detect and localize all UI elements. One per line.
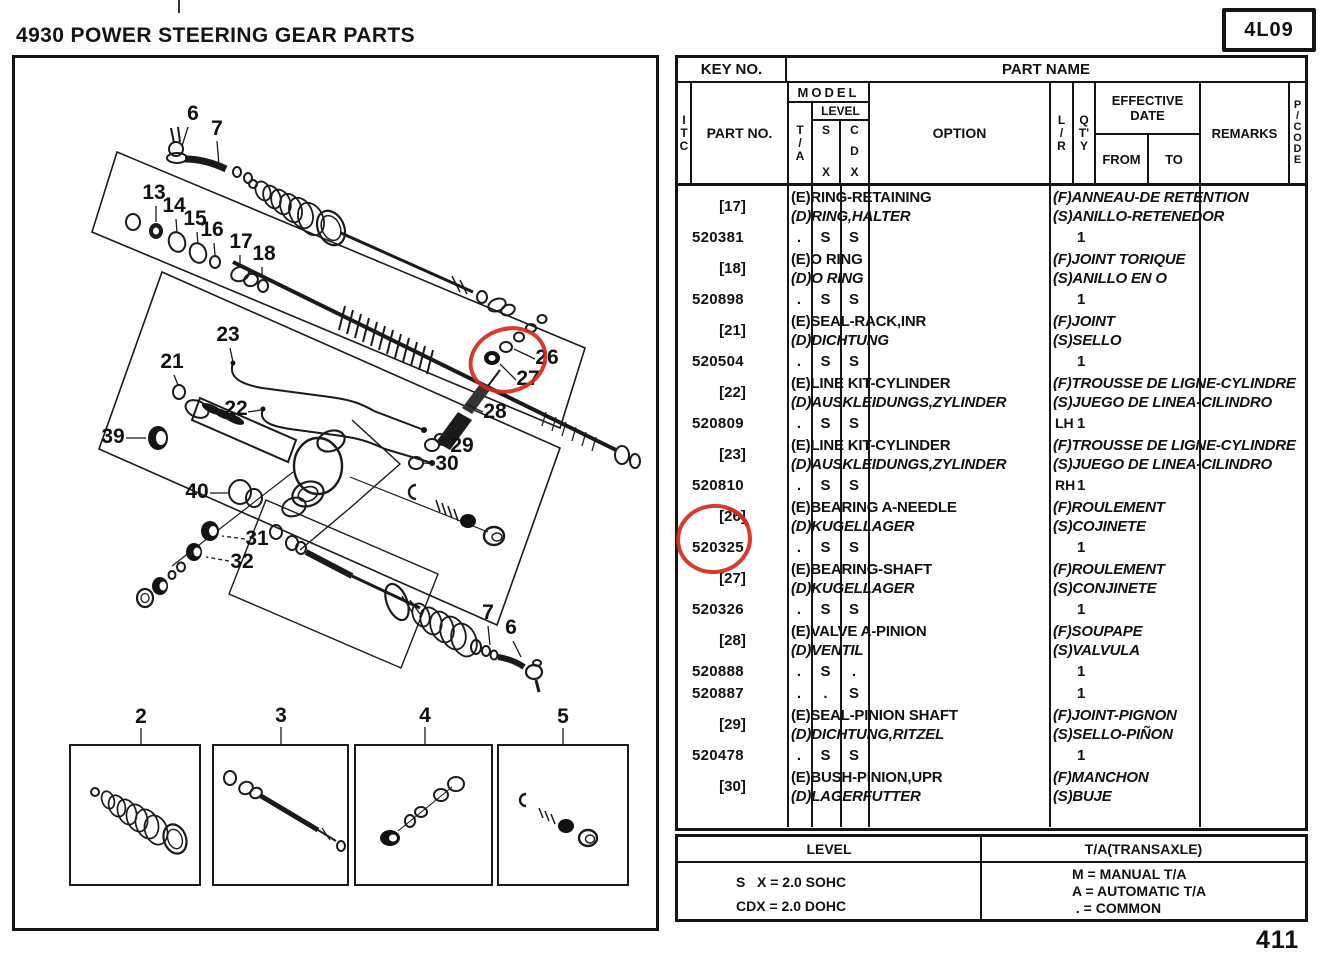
callout-number: 30 — [435, 452, 458, 475]
part-number: 520887 — [678, 685, 787, 702]
name-english: (E)RING-RETAINING — [791, 188, 1049, 207]
name-french: (F)ROULEMENT — [1053, 560, 1305, 579]
header-option: OPTION — [870, 83, 1051, 183]
page-number: 411 — [1256, 926, 1299, 955]
name-spanish: (S)ANILLO-RETENEDOR — [1053, 207, 1305, 226]
catalog-page: { "page": { "title": "4930 POWER STEERIN… — [0, 0, 1324, 963]
name-en-de: (E)BEARING-SHAFT(D)KUGELLAGER — [787, 559, 1049, 598]
sheet-code-box: 4L09 — [1222, 8, 1316, 52]
header-key-no: KEY NO. — [678, 58, 787, 81]
name-spanish: (S)ANILLO EN O — [1053, 269, 1305, 288]
cdx-value: S — [840, 477, 868, 494]
legend-ta-item: . = COMMON — [1072, 900, 1305, 917]
table-body: [17](E)RING-RETAINING(D)RING,HALTER(F)AN… — [678, 186, 1305, 827]
header-effective-date: EFFECTIVE DATE — [1096, 83, 1199, 133]
name-en-de: (E)SEAL-RACK,INR(D)DICHTUNG — [787, 311, 1049, 350]
part-row: 520809.SSLH1 — [678, 412, 1305, 434]
name-spanish: (S)BUJE — [1053, 787, 1305, 806]
qty-value: 1 — [1077, 229, 1099, 246]
name-german: (D)AUSKLEIDUNGS,ZYLINDER — [791, 455, 1049, 474]
name-fr-es: (F)ROULEMENT(S)CONJINETE — [1049, 559, 1305, 598]
ta-value: . — [787, 415, 811, 432]
header-sx: SX — [813, 121, 841, 183]
callout-number: 17 — [229, 230, 252, 253]
header-model: MODEL — [789, 83, 868, 103]
header-ta: T/A — [789, 103, 813, 183]
part-name-row: [28](E)VALVE A-PINION(D)VENTIL(F)SOUPAPE… — [678, 620, 1305, 660]
qty-value: 1 — [1077, 747, 1099, 764]
qty-value: 1 — [1077, 477, 1099, 494]
page-title: 4930 POWER STEERING GEAR PARTS — [16, 24, 415, 48]
header-to: TO — [1149, 135, 1199, 183]
name-french: (F)MANCHON — [1053, 768, 1305, 787]
header-lr: L/R — [1051, 83, 1074, 183]
name-fr-es: (F)JOINT TORIQUE(S)ANILLO EN O — [1049, 249, 1305, 288]
legend-table: LEVEL T/A(TRANSAXLE) S X = 2.0 SOHCCDX =… — [675, 834, 1308, 922]
callout-leader-line — [176, 219, 177, 233]
key-number: [27] — [678, 559, 787, 598]
part-row: 520478.SS1 — [678, 744, 1305, 766]
callout-leader-line — [222, 536, 245, 539]
name-french: (F)SOUPAPE — [1053, 622, 1305, 641]
sx-value: S — [811, 601, 840, 618]
part-name-row: [29](E)SEAL-PINION SHAFT(D)DICHTUNG,RITZ… — [678, 704, 1305, 744]
part-number: 520381 — [678, 229, 787, 246]
name-spanish: (S)JUEGO DE LINEA-CILINDRO — [1053, 455, 1305, 474]
legend-level-title: LEVEL — [678, 837, 982, 861]
qty-value: 1 — [1077, 539, 1099, 556]
part-name-row: [30](E)BUSH-PINION,UPR(D)LAGERFUTTER(F)M… — [678, 766, 1305, 806]
callout-number: 21 — [160, 350, 184, 373]
table-header-row1: KEY NO. PART NAME — [678, 58, 1305, 83]
name-spanish: (S)JUEGO DE LINEA-CILINDRO — [1053, 393, 1305, 412]
callout-number: 40 — [185, 480, 208, 503]
callout-leader-line — [488, 626, 490, 645]
qty-value: 1 — [1077, 601, 1099, 618]
callout-number: 6 — [505, 616, 517, 639]
callout-leader-line — [217, 141, 219, 165]
callout-leader-line — [182, 127, 188, 146]
sx-value: S — [811, 415, 840, 432]
name-fr-es: (F)ROULEMENT(S)COJINETE — [1049, 497, 1305, 536]
key-number: [17] — [678, 187, 787, 226]
name-english: (E)BEARING-SHAFT — [791, 560, 1049, 579]
name-german: (D)DICHTUNG,RITZEL — [791, 725, 1049, 744]
header-cdx: CDX — [841, 121, 868, 183]
name-fr-es: (F)TROUSSE DE LIGNE-CYLINDRE(S)JUEGO DE … — [1049, 373, 1305, 412]
part-row: 520381.SS1 — [678, 226, 1305, 248]
part-name-row: [27](E)BEARING-SHAFT(D)KUGELLAGER(F)ROUL… — [678, 558, 1305, 598]
name-french: (F)TROUSSE DE LIGNE-CYLINDRE — [1053, 436, 1305, 455]
header-remarks: REMARKS — [1201, 83, 1290, 183]
name-spanish: (S)COJINETE — [1053, 517, 1305, 536]
legend-ta-item: M = MANUAL T/A — [1072, 866, 1305, 883]
ta-value: . — [787, 229, 811, 246]
callout-leader-line — [513, 641, 521, 657]
part-number: 520478 — [678, 747, 787, 764]
ta-value: . — [787, 601, 811, 618]
legend-level-item: CDX = 2.0 DOHC — [736, 894, 980, 918]
parts-table: KEY NO. PART NAME ITC PART NO. MODEL T/A… — [675, 55, 1308, 831]
part-number: 520325 — [678, 539, 787, 556]
cdx-value: S — [840, 601, 868, 618]
cdx-value: S — [840, 685, 868, 702]
qty-value: 1 — [1077, 663, 1099, 680]
name-en-de: (E)RING-RETAINING(D)RING,HALTER — [787, 187, 1049, 226]
cdx-value: S — [840, 229, 868, 246]
callout-number: 7 — [482, 601, 494, 624]
name-german: (D)DICHTUNG — [791, 331, 1049, 350]
part-row: 520325.SS1 — [678, 536, 1305, 558]
exploded-view-diagram: 6713141516171823212239402627282930313276… — [12, 55, 659, 931]
callout-number: 16 — [200, 218, 223, 241]
name-german: (D)O RING — [791, 269, 1049, 288]
part-name-row: [23](E)LINE KIT-CYLINDER(D)AUSKLEIDUNGS,… — [678, 434, 1305, 474]
callout-number: 2 — [135, 705, 147, 728]
cdx-value: . — [840, 663, 868, 680]
callout-leader-line — [206, 557, 229, 561]
callout-number: 39 — [101, 425, 124, 448]
name-fr-es: (F)ANNEAU-DE RETENTION(S)ANILLO-RETENEDO… — [1049, 187, 1305, 226]
name-en-de: (E)VALVE A-PINION(D)VENTIL — [787, 621, 1049, 660]
sx-value: S — [811, 229, 840, 246]
ta-value: . — [787, 663, 811, 680]
diagram-drawing: 6713141516171823212239402627282930313276… — [12, 55, 659, 931]
table-header-row2: ITC PART NO. MODEL T/A LEVEL SX CDX OPTI… — [678, 83, 1305, 186]
name-spanish: (S)SELLO-PIÑON — [1053, 725, 1305, 744]
part-row: 520326.SS1 — [678, 598, 1305, 620]
legend-ta-items: M = MANUAL T/AA = AUTOMATIC T/A . = COMM… — [982, 863, 1305, 919]
part-row: 520888.S.1 — [678, 660, 1305, 682]
cdx-value: S — [840, 747, 868, 764]
qty-value: 1 — [1077, 415, 1099, 432]
header-level: LEVEL — [813, 103, 868, 121]
legend-level-item: S X = 2.0 SOHC — [736, 870, 980, 894]
sx-value: . — [811, 685, 840, 702]
name-french: (F)ROULEMENT — [1053, 498, 1305, 517]
ta-value: . — [787, 539, 811, 556]
cdx-value: S — [840, 415, 868, 432]
name-english: (E)BEARING A-NEEDLE — [791, 498, 1049, 517]
name-french: (F)JOINT-PIGNON — [1053, 706, 1305, 725]
sx-value: S — [811, 291, 840, 308]
lr-value: LH — [1049, 415, 1077, 431]
name-english: (E)LINE KIT-CYLINDER — [791, 374, 1049, 393]
key-number: [26] — [678, 497, 787, 536]
legend-ta-title: T/A(TRANSAXLE) — [982, 837, 1305, 861]
callout-number: 28 — [483, 400, 507, 423]
cdx-value: S — [840, 353, 868, 370]
key-number: [30] — [678, 767, 787, 806]
name-fr-es: (F)JOINT-PIGNON(S)SELLO-PIÑON — [1049, 705, 1305, 744]
name-fr-es: (F)MANCHON(S)BUJE — [1049, 767, 1305, 806]
name-spanish: (S)CONJINETE — [1053, 579, 1305, 598]
sheet-code: 4L09 — [1244, 19, 1294, 42]
name-en-de: (E)BEARING A-NEEDLE(D)KUGELLAGER — [787, 497, 1049, 536]
header-from: FROM — [1096, 135, 1149, 183]
callout-number: 32 — [230, 550, 253, 573]
header-effective-date-group: EFFECTIVE DATE FROM TO — [1096, 83, 1201, 183]
name-german: (D)LAGERFUTTER — [791, 787, 1049, 806]
key-number: [28] — [678, 621, 787, 660]
name-german: (D)RING,HALTER — [791, 207, 1049, 226]
callout-number: 4 — [419, 704, 431, 727]
qty-value: 1 — [1077, 685, 1099, 702]
callout-leader-line — [514, 349, 535, 359]
callout-leader-line — [248, 410, 261, 412]
part-name-row: [26](E)BEARING A-NEEDLE(D)KUGELLAGER(F)R… — [678, 496, 1305, 536]
callout-number: 23 — [216, 323, 239, 346]
part-name-row: [22](E)LINE KIT-CYLINDER(D)AUSKLEIDUNGS,… — [678, 372, 1305, 412]
part-number: 520809 — [678, 415, 787, 432]
name-french: (F)TROUSSE DE LIGNE-CYLINDRE — [1053, 374, 1305, 393]
name-english: (E)SEAL-RACK,INR — [791, 312, 1049, 331]
name-fr-es: (F)TROUSSE DE LIGNE-CYLINDRE(S)JUEGO DE … — [1049, 435, 1305, 474]
ta-value: . — [787, 477, 811, 494]
part-row: 520810.SSRH1 — [678, 474, 1305, 496]
part-number: 520888 — [678, 663, 787, 680]
callout-number: 31 — [245, 527, 269, 550]
sx-value: S — [811, 353, 840, 370]
callout-number: 3 — [275, 704, 287, 727]
part-number: 520810 — [678, 477, 787, 494]
sx-value: S — [811, 539, 840, 556]
legend-level-items: S X = 2.0 SOHCCDX = 2.0 DOHC — [678, 863, 982, 919]
name-english: (E)VALVE A-PINION — [791, 622, 1049, 641]
name-german: (D)KUGELLAGER — [791, 517, 1049, 536]
callout-number: 22 — [224, 397, 247, 420]
header-qty: QT'Y — [1074, 83, 1096, 183]
name-spanish: (S)VALVULA — [1053, 641, 1305, 660]
name-german: (D)KUGELLAGER — [791, 579, 1049, 598]
part-row: 520887..S1 — [678, 682, 1305, 704]
name-english: (E)SEAL-PINION SHAFT — [791, 706, 1049, 725]
key-number: [23] — [678, 435, 787, 474]
part-name-row: [17](E)RING-RETAINING(D)RING,HALTER(F)AN… — [678, 186, 1305, 226]
ta-value: . — [787, 685, 811, 702]
sx-value: S — [811, 747, 840, 764]
callout-number: 6 — [187, 102, 199, 125]
legend-ta-item: A = AUTOMATIC T/A — [1072, 883, 1305, 900]
cdx-value: S — [840, 539, 868, 556]
header-model-group: MODEL T/A LEVEL SX CDX — [789, 83, 870, 183]
part-name-row: [18](E)O RING(D)O RING(F)JOINT TORIQUE(S… — [678, 248, 1305, 288]
key-number: [22] — [678, 373, 787, 412]
header-itc: ITC — [678, 83, 692, 183]
callout-leader-line — [500, 364, 516, 380]
name-french: (F)JOINT — [1053, 312, 1305, 331]
part-number: 520326 — [678, 601, 787, 618]
cdx-value: S — [840, 291, 868, 308]
part-row: 520898.SS1 — [678, 288, 1305, 310]
part-number: 520504 — [678, 353, 787, 370]
ta-value: . — [787, 747, 811, 764]
name-spanish: (S)SELLO — [1053, 331, 1305, 350]
callout-leader-line — [214, 243, 215, 255]
part-name-row: [21](E)SEAL-RACK,INR(D)DICHTUNG(F)JOINT(… — [678, 310, 1305, 350]
name-english: (E)BUSH-PINION,UPR — [791, 768, 1049, 787]
name-en-de: (E)BUSH-PINION,UPR(D)LAGERFUTTER — [787, 767, 1049, 806]
key-number: [29] — [678, 705, 787, 744]
name-en-de: (E)SEAL-PINION SHAFT(D)DICHTUNG,RITZEL — [787, 705, 1049, 744]
part-row: 520504.SS1 — [678, 350, 1305, 372]
ta-value: . — [787, 291, 811, 308]
ta-value: . — [787, 353, 811, 370]
diagram-callouts: 6713141516171823212239402627282930313276… — [101, 102, 569, 745]
header-part-name: PART NAME — [787, 58, 1305, 81]
callout-number: 7 — [211, 117, 223, 140]
qty-value: 1 — [1077, 353, 1099, 370]
sx-value: S — [811, 663, 840, 680]
name-french: (F)ANNEAU-DE RETENTION — [1053, 188, 1305, 207]
lr-value: RH — [1049, 477, 1077, 493]
callout-leader-line — [230, 348, 233, 362]
name-english: (E)LINE KIT-CYLINDER — [791, 436, 1049, 455]
name-fr-es: (F)JOINT(S)SELLO — [1049, 311, 1305, 350]
name-german: (D)VENTIL — [791, 641, 1049, 660]
name-en-de: (E)LINE KIT-CYLINDER(D)AUSKLEIDUNGS,ZYLI… — [787, 373, 1049, 412]
scan-artifact-tick — [178, 0, 180, 13]
name-german: (D)AUSKLEIDUNGS,ZYLINDER — [791, 393, 1049, 412]
name-french: (F)JOINT TORIQUE — [1053, 250, 1305, 269]
callout-number: 5 — [557, 705, 569, 728]
key-number: [21] — [678, 311, 787, 350]
name-fr-es: (F)SOUPAPE(S)VALVULA — [1049, 621, 1305, 660]
name-english: (E)O RING — [791, 250, 1049, 269]
callout-leader-line — [174, 375, 178, 385]
sx-value: S — [811, 477, 840, 494]
key-number: [18] — [678, 249, 787, 288]
header-pcode: P/CODE — [1290, 83, 1305, 183]
callout-number: 18 — [252, 242, 276, 265]
name-en-de: (E)O RING(D)O RING — [787, 249, 1049, 288]
part-number: 520898 — [678, 291, 787, 308]
qty-value: 1 — [1077, 291, 1099, 308]
header-part-no: PART NO. — [692, 83, 789, 183]
name-en-de: (E)LINE KIT-CYLINDER(D)AUSKLEIDUNGS,ZYLI… — [787, 435, 1049, 474]
